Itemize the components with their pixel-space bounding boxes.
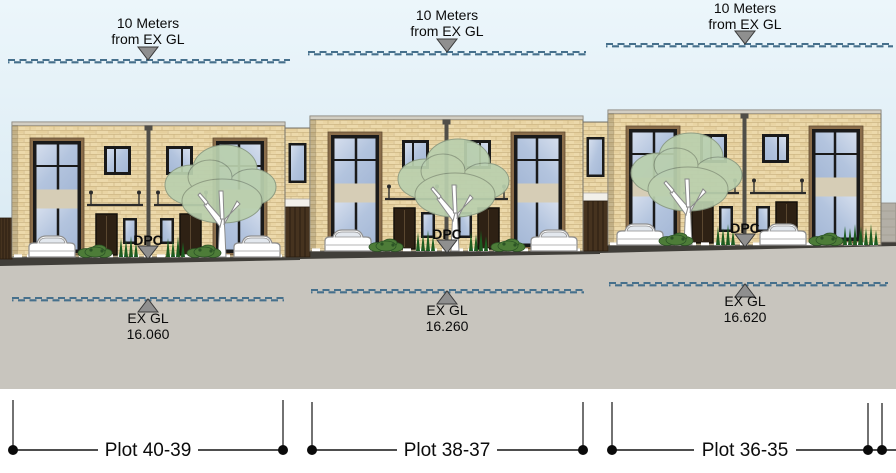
dimension-end-dot [578,445,588,455]
dimension-end-dot [307,445,317,455]
dimension-plot-40-39: Plot 40-39 [8,400,288,461]
dimension-plot-38-37: Plot 38-37 [307,402,588,461]
datum-label-line1: 10 Meters [714,0,776,16]
elevation-canvas: 10 Meters from EX GL 10 Meters from EX G… [0,0,896,473]
exgl-label: EX GL [127,310,168,326]
left-boundary-fence [0,218,12,259]
dimension-end-dot [278,445,288,455]
link-structure-1 [285,128,310,257]
dimension-end-dot [863,445,873,455]
datum-label-line2: from EX GL [410,23,483,39]
datum-label-line1: 10 Meters [416,7,478,23]
link-structure-2 [583,122,608,251]
dimension-plot-36-35: Plot 36-35 [607,402,896,461]
right-boundary-wall [881,203,896,242]
plot-label: Plot 40-39 [105,440,192,461]
elevation-drawing: 10 Meters from EX GL 10 Meters from EX G… [0,0,896,473]
dimension-end-dot [877,445,887,455]
exgl-value: 16.060 [127,326,170,342]
plot-label: Plot 36-35 [702,440,789,461]
datum-label-line1: 10 Meters [117,15,179,31]
dimension-end-dot [607,445,617,455]
exgl-label: EX GL [724,293,765,309]
dimension-end-dot [8,445,18,455]
exgl-value: 16.260 [426,318,469,334]
exgl-value: 16.620 [724,309,767,325]
plot-label: Plot 38-37 [404,440,491,461]
exgl-label: EX GL [426,302,467,318]
datum-label-line2: from EX GL [708,16,781,32]
datum-label-line2: from EX GL [111,31,184,47]
